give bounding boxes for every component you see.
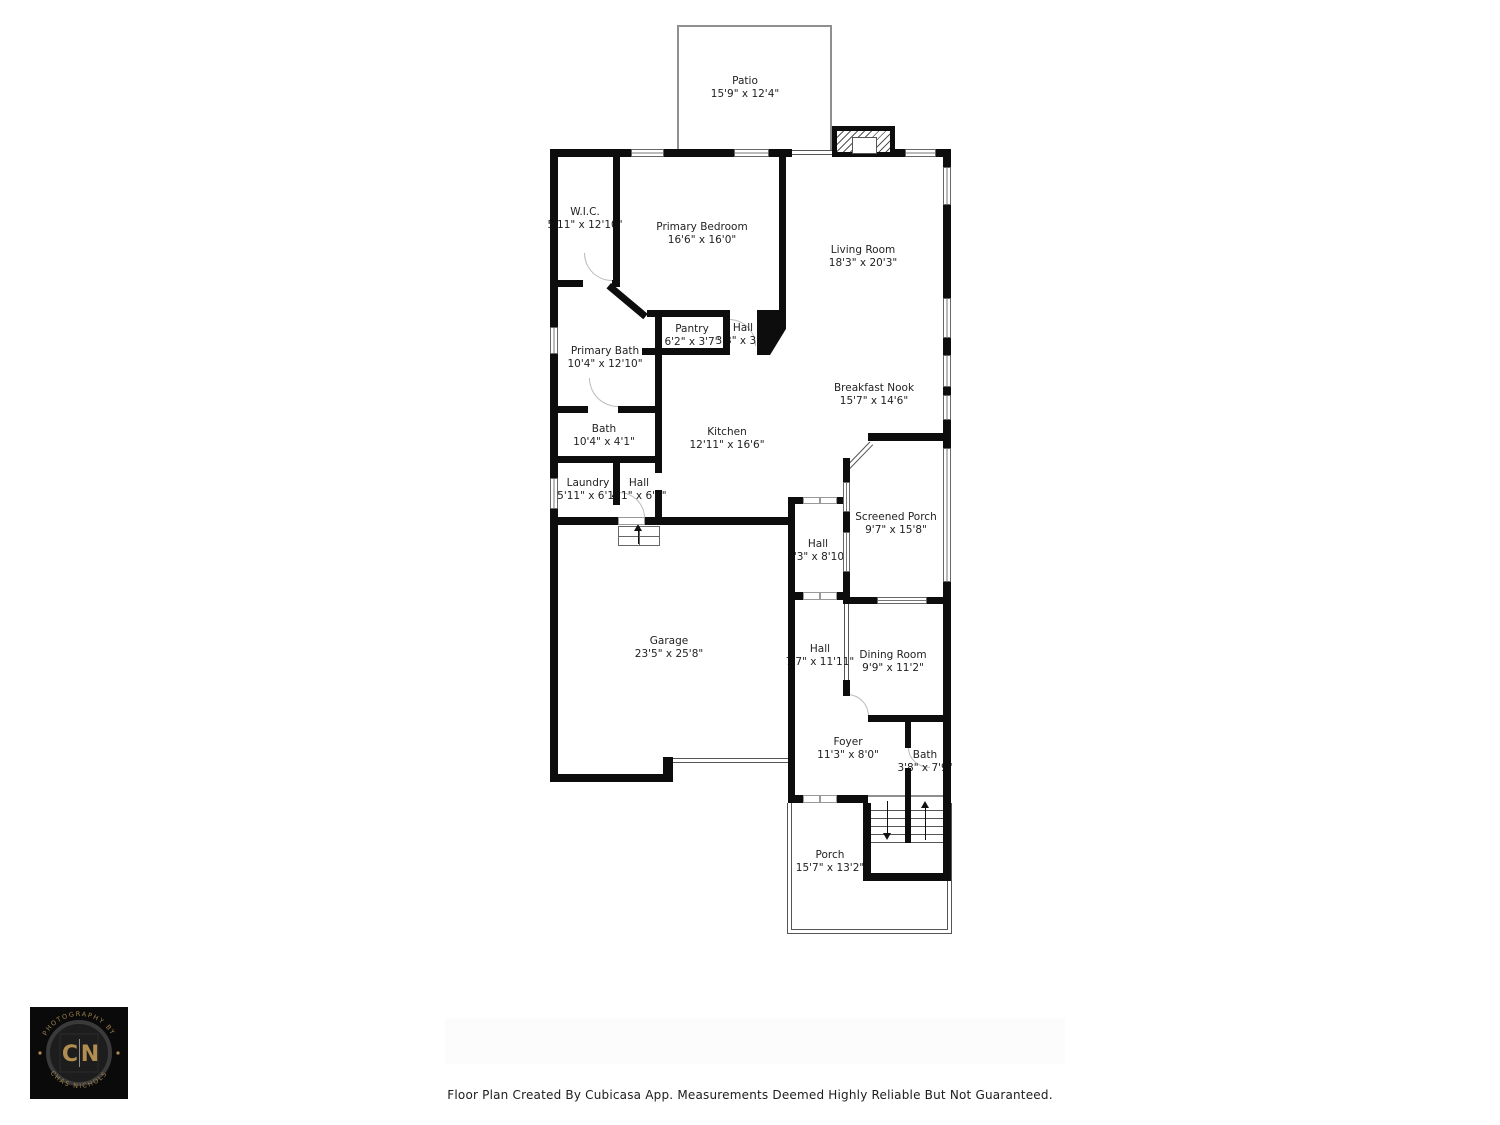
window: [943, 395, 951, 420]
wall-segment: [943, 387, 951, 395]
window: [550, 327, 558, 354]
wall-segment: [655, 310, 662, 463]
door-arc: [589, 378, 618, 407]
wall-segment: [843, 680, 850, 696]
footer-disclaimer: Floor Plan Created By Cubicasa App. Meas…: [0, 1088, 1500, 1102]
logo-initial-n: N: [81, 1042, 99, 1067]
window: [943, 448, 951, 582]
wall-segment: [769, 149, 792, 157]
wall-segment: [843, 458, 850, 482]
stair-arrow-line: [887, 801, 888, 834]
window: [550, 478, 558, 509]
logo-graphic: C N PHOTOGRAPHY BY CHAS NICHOLS: [30, 1007, 128, 1099]
wall-segment: [550, 280, 583, 287]
door-opening: [803, 497, 820, 504]
room-label-primary-bath: Primary Bath10'4" x 12'10": [567, 345, 642, 371]
door-arc: [847, 694, 869, 716]
door-opening: [820, 795, 837, 803]
wall-segment: [550, 149, 631, 157]
door-opening: [618, 517, 645, 525]
stair-arrow-up: [921, 801, 929, 808]
wall-segment: [905, 768, 911, 843]
room-label-hall-mid: Hall5'3" x 8'10": [787, 538, 849, 564]
window: [943, 167, 951, 205]
room-label-breakfast-nook: Breakfast Nook15'7" x 14'6": [834, 382, 914, 408]
wall-segment: [843, 512, 850, 532]
wall-segment: [943, 149, 951, 167]
stair-arrow-down: [883, 833, 891, 840]
wall-segment: [663, 757, 673, 782]
stair-arrow-line: [638, 530, 639, 544]
wall-segment: [613, 157, 620, 287]
window: [943, 298, 951, 338]
porch-door-diagonal: [846, 442, 873, 470]
fireplace-insert: [852, 137, 877, 154]
room-label-wic: W.I.C.5'11" x 12'10": [547, 206, 622, 232]
room-label-patio: Patio15'9" x 12'4": [711, 75, 779, 101]
wall-segment: [837, 795, 868, 803]
wall-segment: [550, 517, 618, 525]
room-label-dining-room: Dining Room9'9" x 11'2": [859, 649, 926, 675]
garage-door: [673, 758, 788, 763]
room-label-kitchen: Kitchen12'11" x 16'6": [689, 426, 764, 452]
wall-segment: [943, 338, 951, 355]
window: [877, 597, 927, 604]
door-opening: [820, 592, 837, 600]
wall-segment: [863, 873, 950, 881]
wall-segment: [664, 149, 734, 157]
logo-initial-c: C: [62, 1042, 78, 1067]
door-opening: [803, 592, 820, 600]
wall-segment: [795, 592, 803, 600]
wall-segment: [943, 205, 951, 298]
wall-diagonal: [607, 283, 648, 319]
wall-segment: [655, 463, 662, 473]
wall-segment: [788, 497, 795, 803]
wall-segment: [550, 406, 588, 413]
window: [843, 532, 850, 572]
window: [631, 149, 664, 157]
logo-dot-left: [38, 1051, 41, 1054]
wall-segment: [795, 497, 803, 504]
room-label-bath-upper: Bath10'4" x 4'1": [573, 423, 635, 449]
photographer-logo: C N PHOTOGRAPHY BY CHAS NICHOLS: [30, 1007, 128, 1099]
wall-segment: [613, 463, 620, 505]
wall-corner: [757, 310, 786, 355]
floor-plan-page: Patio15'9" x 12'4" W.I.C.5'11" x 12'10" …: [0, 0, 1500, 1125]
wall-segment: [550, 509, 558, 782]
door-opening: [820, 497, 837, 504]
room-label-garage: Garage23'5" x 25'8": [635, 635, 703, 661]
wall-segment: [642, 348, 730, 355]
wall-segment: [645, 517, 795, 525]
room-label-screened-porch: Screened Porch9'7" x 15'8": [855, 511, 936, 537]
window: [943, 355, 951, 387]
wall-segment: [550, 774, 670, 782]
wall-segment: [863, 803, 871, 878]
door-arc: [584, 253, 612, 281]
stair-arrow-line: [925, 807, 926, 840]
window: [905, 149, 936, 157]
fireplace: [832, 126, 895, 157]
wall-segment: [943, 721, 951, 881]
wall-segment: [895, 149, 905, 157]
wall-segment: [943, 604, 951, 721]
room-label-porch: Porch15'7" x 13'2": [796, 849, 864, 875]
wall-segment: [779, 157, 786, 310]
room-label-pantry: Pantry6'2" x 3'7": [664, 323, 719, 349]
room-label-living-room: Living Room18'3" x 20'3": [829, 244, 897, 270]
wall-segment: [868, 433, 948, 441]
wall-segment: [905, 721, 911, 748]
stair-arrow-up: [634, 524, 642, 531]
room-label-laundry: Laundry5'11" x 6'1": [557, 477, 619, 503]
door-opening: [803, 795, 820, 803]
logo-dot-right: [116, 1051, 119, 1054]
wall-segment: [550, 456, 662, 463]
room-label-foyer: Foyer11'3" x 8'0": [817, 736, 879, 762]
room-label-primary-bedroom: Primary Bedroom16'6" x 16'0": [656, 221, 747, 247]
wall-segment: [788, 795, 803, 803]
wall-segment: [550, 149, 558, 327]
patio-door: [792, 150, 832, 155]
room-label-hall-lower: Hall7'7" x 11'11": [786, 643, 854, 669]
wall-segment: [618, 406, 662, 413]
window: [734, 149, 769, 157]
window: [843, 482, 850, 512]
faint-watermark: [445, 1018, 1065, 1064]
